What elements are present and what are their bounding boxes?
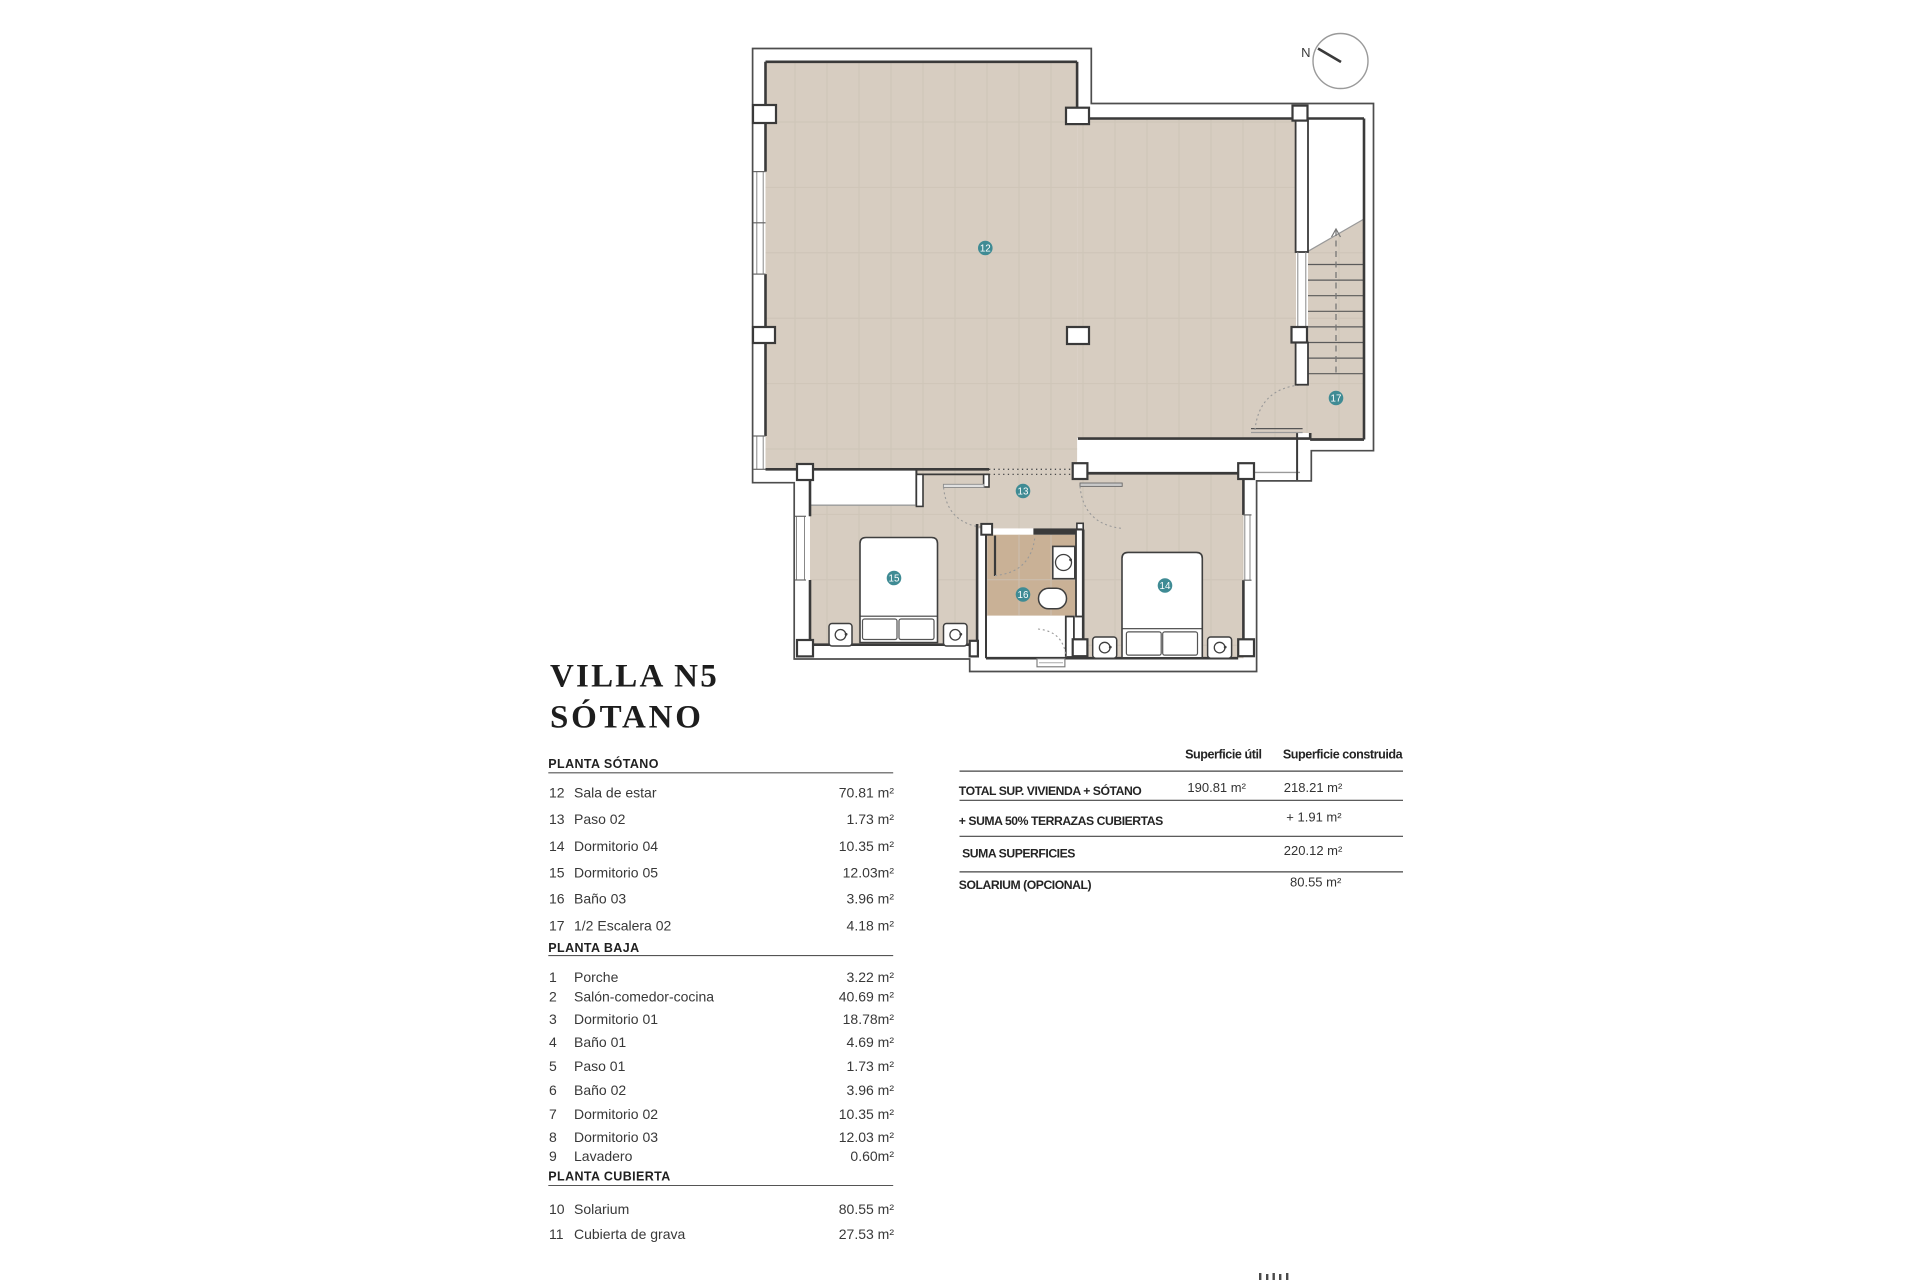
svg-text:Sala de estar: Sala de estar [574,785,657,801]
svg-text:13: 13 [1018,486,1029,497]
svg-text:SUMA SUPERFICIES: SUMA SUPERFICIES [962,847,1075,861]
svg-text:40.69 m²: 40.69 m² [839,988,895,1004]
svg-text:Lavadero: Lavadero [574,1148,633,1164]
svg-text:12: 12 [980,243,991,254]
svg-text:80.55 m²: 80.55 m² [839,1201,895,1217]
svg-text:SÓTANO: SÓTANO [550,698,704,736]
svg-text:Dormitorio 05: Dormitorio 05 [574,865,658,881]
svg-text:3.22 m²: 3.22 m² [847,969,895,985]
svg-text:80.55 m²: 80.55 m² [1290,874,1342,889]
svg-text:3.96 m²: 3.96 m² [847,1082,895,1098]
svg-text:PLANTA CUBIERTA: PLANTA CUBIERTA [548,1169,670,1183]
svg-text:16: 16 [1018,590,1029,601]
svg-text:11: 11 [549,1226,564,1242]
svg-text:SOLARIUM (OPCIONAL): SOLARIUM (OPCIONAL) [959,878,1092,892]
svg-text:27.53 m²: 27.53 m² [839,1226,895,1242]
svg-text:PLANTA SÓTANO: PLANTA SÓTANO [548,756,659,771]
svg-text:4: 4 [549,1034,557,1050]
svg-text:18.78m²: 18.78m² [843,1011,895,1027]
svg-text:Salón-comedor-cocina: Salón-comedor-cocina [574,988,714,1004]
svg-text:Baño 01: Baño 01 [574,1034,626,1050]
svg-text:Dormitorio 03: Dormitorio 03 [574,1129,658,1145]
svg-text:4.69 m²: 4.69 m² [847,1034,895,1050]
svg-text:Baño 02: Baño 02 [574,1082,626,1098]
svg-text:3.96 m²: 3.96 m² [847,890,895,906]
svg-text:Dormitorio 04: Dormitorio 04 [574,838,658,854]
svg-text:17: 17 [549,918,565,934]
svg-text:15: 15 [549,865,565,881]
svg-text:6: 6 [549,1082,557,1098]
svg-text:16: 16 [549,890,565,906]
svg-text:2: 2 [549,988,557,1004]
svg-text:VILLA N5: VILLA N5 [550,658,719,694]
svg-text:220.12 m²: 220.12 m² [1284,843,1343,858]
svg-text:1.73 m²: 1.73 m² [847,811,895,827]
svg-text:0.60m²: 0.60m² [850,1148,894,1164]
svg-text:70.81 m²: 70.81 m² [839,785,895,801]
svg-text:190.81 m²: 190.81 m² [1187,780,1246,795]
svg-text:Cubierta de grava: Cubierta de grava [574,1226,686,1242]
svg-text:7: 7 [549,1106,557,1122]
svg-text:Baño 03: Baño 03 [574,890,626,906]
svg-text:17: 17 [1331,393,1342,404]
svg-text:12: 12 [549,785,565,801]
svg-text:3: 3 [549,1011,557,1027]
svg-text:+ 1.91 m²: + 1.91 m² [1286,810,1342,825]
svg-text:13: 13 [549,811,565,827]
svg-text:Dormitorio 02: Dormitorio 02 [574,1106,658,1122]
svg-text:Superficie útil: Superficie útil [1185,748,1262,762]
svg-text:+ SUMA 50% TERRAZAS CUBIERTAS: + SUMA 50% TERRAZAS CUBIERTAS [959,814,1163,828]
svg-text:N: N [1301,45,1310,60]
svg-text:Paso 02: Paso 02 [574,811,626,827]
svg-text:Dormitorio 01: Dormitorio 01 [574,1011,658,1027]
svg-text:14: 14 [549,838,565,854]
svg-text:12.03m²: 12.03m² [843,865,895,881]
svg-text:10.35 m²: 10.35 m² [839,1106,895,1122]
svg-text:Superficie construida: Superficie construida [1283,748,1404,762]
svg-text:1.73 m²: 1.73 m² [847,1058,895,1074]
svg-text:PLANTA BAJA: PLANTA BAJA [548,941,639,955]
svg-text:218.21 m²: 218.21 m² [1284,780,1343,795]
svg-text:TOTAL SUP. VIVIENDA + SÓTANO: TOTAL SUP. VIVIENDA + SÓTANO [959,783,1142,798]
svg-text:Solarium: Solarium [574,1201,629,1217]
svg-text:5: 5 [549,1058,557,1074]
svg-text:1/2 Escalera 02: 1/2 Escalera 02 [574,918,671,934]
svg-text:10: 10 [549,1201,565,1217]
svg-text:Paso 01: Paso 01 [574,1058,626,1074]
svg-text:14: 14 [1160,581,1171,592]
svg-text:1: 1 [549,969,557,985]
svg-text:8: 8 [549,1129,557,1145]
svg-text:10.35 m²: 10.35 m² [839,838,895,854]
svg-text:12.03 m²: 12.03 m² [839,1129,895,1145]
svg-text:15: 15 [889,573,900,584]
svg-text:9: 9 [549,1148,557,1164]
svg-text:Porche: Porche [574,969,619,985]
svg-text:4.18 m²: 4.18 m² [847,918,895,934]
